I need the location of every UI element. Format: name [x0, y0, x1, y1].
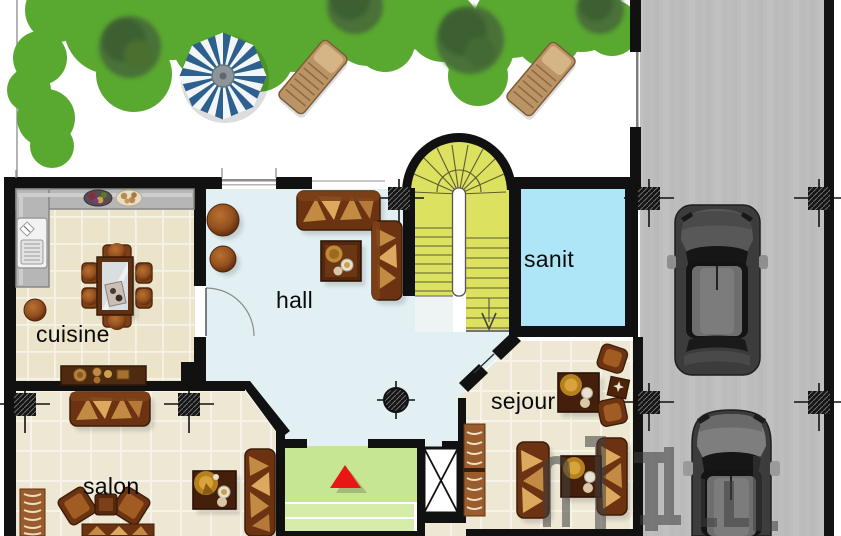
- svg-text:hall: hall: [276, 287, 313, 313]
- svg-text:cuisine: cuisine: [36, 321, 110, 347]
- svg-text:sanit: sanit: [524, 246, 574, 272]
- svg-text:salon: salon: [83, 473, 139, 499]
- svg-text:sejour: sejour: [491, 388, 555, 414]
